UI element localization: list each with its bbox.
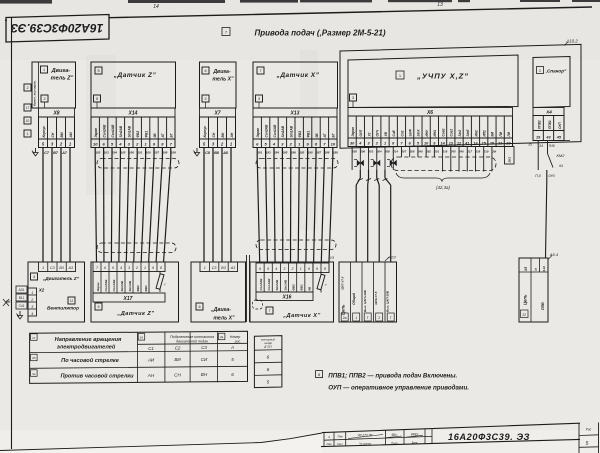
svg-text:Лист: Лист [337,442,343,446]
svg-text:9,10: 9,10 [542,266,546,272]
svg-text:16А20Ф3С39. ЭЗ: 16А20Ф3С39. ЭЗ [448,432,530,442]
svg-text:3209-У7.5: 3209-У7.5 [374,291,378,305]
svg-text:А3: А3 [230,266,235,270]
svg-text:3: 3 [352,96,354,100]
svg-text:Двига-: Двига- [212,69,231,75]
svg-text:Цепь: Цепь [523,294,528,305]
svg-text:188: 188 [325,151,330,155]
svg-text:ИН2: ИН2 [474,130,478,137]
svg-text:Изм: Изм [327,442,332,446]
svg-text:Вых. ЦАП+10В: Вых. ЦАП+10В [363,289,367,312]
svg-text:ЛИ: ЛИ [507,131,511,137]
svg-text:5: 5 [586,441,589,447]
svg-text:23: 23 [505,141,511,145]
svg-text:„Двига-: „Двига- [210,307,231,313]
svg-text:ОУП: ОУП [359,129,363,136]
svg-text:Подп.: Подп. [391,441,398,445]
svg-text:22: 22 [522,313,526,317]
svg-text:Х13: Х13 [290,111,300,117]
svg-text:1б: 1б [140,336,144,340]
svg-text:Экран: Экран [96,282,100,291]
svg-text:189: 189 [333,151,338,155]
svg-text:109: 109 [171,151,176,155]
svg-text:С1: С1 [148,346,154,351]
svg-text:35: 35 [528,143,532,147]
svg-text:0У0: 0У0 [548,174,554,178]
svg-text:1: 1 [42,266,44,270]
svg-text:4: 4 [120,266,122,270]
svg-text:41: 41 [464,141,469,145]
svg-text:5: 5 [112,266,114,270]
svg-text:2: 2 [43,97,45,101]
svg-text:Сол1АВ: Сол1АВ [267,278,271,291]
svg-text:Х7: Х7 [213,111,220,117]
svg-text:Номер: Номер [230,335,241,339]
svg-text:„Двигатель Z”: „Двигатель Z” [42,276,80,282]
svg-text:64: 64 [559,164,563,168]
svg-text:9: 9 [316,267,318,271]
svg-text:Sin1АВ: Sin1АВ [283,279,287,291]
svg-text:ВМ: ВМ [60,132,64,137]
svg-text:2: 2 [26,86,28,90]
svg-text:22: 22 [497,141,503,145]
svg-text:Х14: Х14 [128,111,138,117]
svg-text:17: 17 [32,336,36,340]
svg-text:45: 45 [556,135,562,139]
svg-text:Направление вращения: Направление вращения [55,337,122,343]
svg-text:3: 3 [258,97,260,101]
svg-text:У2: У2 [367,132,371,136]
svg-text:6: 6 [231,372,234,377]
svg-text:7И6: 7И6 [548,144,554,148]
svg-text:185: 185 [283,151,288,155]
svg-text:186: 186 [291,151,296,155]
svg-text:3н: 3н [32,372,36,376]
svg-text:Общий: Общий [352,292,356,305]
svg-text:1: 1 [300,267,302,271]
svg-text:А3: А3 [68,266,73,270]
svg-text:С2: С2 [175,346,181,351]
svg-text:УВ: УВ [384,131,388,136]
svg-text:1: 1 [355,316,357,320]
svg-text:Sin2: Sin2 [458,130,462,137]
svg-text:6: 6 [204,69,206,73]
svg-text:В3: В3 [59,266,63,270]
svg-text:АН: АН [230,132,234,138]
svg-text:Вентилятор: Вентилятор [47,306,79,312]
svg-text:Против часовой стрелки: Против часовой стрелки [60,373,134,380]
svg-text:ВН: ВН [221,132,225,137]
svg-text:Г: Г [390,316,392,320]
svg-text:„УЧПУ X,Z”: „УЧПУ X,Z” [416,72,469,81]
svg-text:4: 4 [33,275,35,279]
svg-text:ОУП: ОУП [558,122,562,129]
svg-text:ППВ2: ППВ2 [537,120,541,129]
svg-text:6: 6 [267,355,270,361]
svg-text:А7: А7 [61,151,68,155]
svg-text:С3: С3 [50,266,55,270]
svg-text:„Датчик Z”: „Датчик Z” [113,72,157,79]
svg-text:181: 181 [257,151,262,155]
svg-text:Х5: Х5 [524,267,528,272]
svg-text:С3: С3 [212,266,217,270]
svg-text:По часовой стрелке: По часовой стрелке [61,357,119,364]
svg-text:тель Z”: тель Z” [51,76,74,82]
svg-text:3: 3 [31,305,33,309]
svg-text:ППВ1: ППВ1 [548,120,552,129]
svg-text:7: 7 [268,309,270,313]
svg-text:Сол1АВ: Сол1АВ [112,279,116,292]
svg-text:Г: Г [367,316,369,320]
svg-text:2б: 2б [32,356,36,360]
svg-text:1: 1 [384,141,386,145]
svg-text:108: 108 [163,151,168,155]
svg-text:Сп2: Сп2 [400,130,404,136]
svg-text:Sin1АВ: Sin1АВ [128,280,132,292]
svg-text:7: 7 [259,69,261,73]
svg-text:Х2: Х2 [38,288,45,293]
svg-text:3: 3 [128,266,130,270]
svg-text:13: 13 [437,2,443,8]
svg-text:100: 100 [146,151,151,155]
svg-text:184: 184 [274,151,279,155]
svg-text:2в: 2в [220,335,224,339]
svg-text:СиЕ: СиЕ [392,129,396,136]
svg-text:ППВ1; ППВ2 — привода подач В: ППВ1; ППВ2 — привода подач Включены. [328,372,457,379]
svg-text:Х4: Х4 [545,110,552,115]
svg-text:9: 9 [308,267,310,271]
svg-text:Двига-: Двига- [51,68,71,74]
svg-text:Вых. ЦАП-10В: Вых. ЦАП-10В [386,290,390,312]
svg-text:0В: 0В [153,133,157,138]
svg-text:1: 1 [144,266,146,270]
svg-text:Сos2: Сos2 [450,129,454,137]
svg-text:14: 14 [153,4,159,10]
svg-text:ФВ2: ФВ2 [136,285,140,292]
svg-text:Sin2АВ: Sin2АВ [281,125,285,137]
svg-text:6: 6 [267,367,270,373]
svg-text:5: 5 [97,305,99,309]
svg-text:рис.: рис. [234,340,241,344]
svg-text:ИНУ: ИНУ [425,129,429,137]
svg-text:ПИ: ПИ [499,131,503,136]
svg-text:Sin2АВ: Sin2АВ [119,125,123,137]
svg-text:двигателей подач: двигателей подач [176,340,208,344]
svg-text:электродвигателей: электродвигателей [57,344,116,351]
svg-text:Экран: Экран [351,127,355,137]
svg-text:Привода подач (‚Размер 2М-5-21: Привода подач (‚Размер 2М-5-21) [255,29,386,38]
svg-text:А5.4: А5.4 [549,252,559,257]
svg-text:Экран: Экран [256,128,260,138]
svg-text:106: 106 [129,151,134,155]
svg-text:107: 107 [154,151,159,155]
svg-text:СоsЕ: СоsЕ [441,128,445,137]
svg-text:Колич. жил пров.: Колич. жил пров. [33,80,37,106]
svg-text:№ докум.: № докум. [359,441,372,445]
svg-text:2а: 2а [343,316,347,320]
svg-text:43: 43 [545,135,551,139]
svg-text:3207-У7.4: 3207-У7.4 [341,276,345,290]
svg-text:„Датчик Z”: „Датчик Z” [116,311,154,317]
svg-text:SinХ: SinХ [417,129,421,137]
svg-text:10: 10 [26,119,30,123]
svg-text:5: 5 [267,380,270,386]
svg-text:8: 8 [160,266,162,270]
svg-text:7Им: 7Им [337,435,343,439]
svg-text:АН: АН [147,373,155,378]
svg-text:ОУЧ: ОУЧ [376,129,380,136]
svg-text:ФВ1: ФВ1 [300,284,304,291]
svg-text:ИНХ: ИНХ [433,129,437,137]
svg-text:„Датчик X”: „Датчик X” [282,313,321,319]
svg-text:34: 34 [539,144,543,148]
svg-text:12: 12 [70,299,74,303]
svg-text:ИП2: ИП2 [483,130,487,137]
svg-text:А: А [230,345,234,350]
svg-text:Сол2АВ: Сол2АВ [104,279,108,292]
svg-text:2: 2 [30,298,33,302]
svg-text:5: 5 [267,267,269,271]
svg-text:А31: А31 [19,288,25,292]
svg-text:ОУП — оперативное управление: ОУП — оперативное управление приводами. [328,385,469,392]
svg-text:Sin2АВ: Sin2АВ [275,279,279,291]
svg-text:Сол1АВ: Сол1АВ [273,124,277,138]
svg-text:Х6: Х6 [426,110,433,116]
svg-text:ФВ1: ФВ1 [144,131,148,138]
svg-text:8: 8 [318,373,320,377]
svg-text:Сол2АВ: Сол2АВ [259,278,263,291]
svg-text:ВИ: ВИ [174,357,181,362]
svg-text:тель X”: тель X” [213,316,235,322]
svg-text:1: 1 [26,132,28,136]
svg-text:4: 4 [31,312,33,316]
svg-text:1: 1 [43,68,45,72]
svg-text:Х17: Х17 [123,296,133,302]
svg-text:5: 5 [231,357,234,362]
svg-text:ВН: ВН [201,372,208,377]
svg-text:8: 8 [324,267,326,271]
svg-text:4: 4 [275,267,277,271]
svg-text:СН: СН [51,132,55,137]
svg-text:17: 17 [26,106,30,110]
svg-text:SinЕ: SinЕ [466,129,470,137]
svg-text:3: 3 [283,267,285,271]
svg-text:2И1: 2И1 [508,157,512,164]
svg-text:ФВ2: ФВ2 [291,284,295,291]
svg-text:2: 2 [539,69,541,73]
svg-text:тель X”: тель X” [212,77,234,83]
svg-text:Х8: Х8 [52,111,59,117]
svg-text:(42,3а): (42,3а) [436,185,450,190]
svg-text:9: 9 [152,266,154,270]
svg-text:АИ: АИ [147,358,155,363]
svg-text:Sin1АВ: Sin1АВ [290,125,294,137]
svg-text:Рис: Рис [586,428,592,432]
svg-text:А8: А8 [222,151,229,155]
svg-text:С3: С3 [201,345,207,350]
svg-text:2: 2 [204,97,206,101]
svg-text:Х16: Х16 [282,295,292,301]
svg-text:SinФ: SinФ [408,129,412,137]
svg-text:105: 105 [121,151,126,155]
svg-text:Подключение контактов: Подключение контактов [170,335,214,339]
svg-text:1: 1 [204,266,206,270]
svg-text:КМ2: КМ2 [557,153,566,158]
svg-text:1а: 1а [534,267,538,271]
svg-text:10: 10 [331,141,336,146]
svg-text:ВИ: ВИ [491,131,495,136]
svg-text:Сол2АВ: Сол2АВ [264,124,268,138]
svg-text:СИ: СИ [201,357,208,362]
svg-text:2: 2 [135,266,138,270]
svg-text:П‚0: П‚0 [535,174,540,178]
svg-text:СН: СН [174,373,181,378]
svg-text:В11: В11 [19,296,25,300]
svg-text:16А20Ф3С39.ЭЗ: 16А20Ф3С39.ЭЗ [10,21,103,35]
svg-text:1: 1 [31,291,33,295]
svg-text:6: 6 [259,267,261,271]
svg-text:В3: В3 [221,266,225,270]
svg-text:С41: С41 [19,304,25,308]
svg-text:ФВ2: ФВ2 [136,131,140,138]
svg-text:Корпус: Корпус [203,126,207,138]
svg-text:Дата: Дата [412,440,418,444]
svg-text:2: 2 [378,316,380,320]
svg-text:ППВ: ППВ [541,302,545,310]
svg-text:Sin1АВ: Sin1АВ [128,125,132,137]
svg-text:Корпус: Корпус [42,126,46,138]
svg-text:101: 101 [137,151,142,155]
svg-text:Д-313: Д-313 [263,345,272,349]
svg-text:ФВ1: ФВ1 [144,285,148,292]
svg-text:6: 6 [198,305,200,309]
svg-text:‚Спанор”: ‚Спанор” [545,69,567,74]
svg-text:6: 6 [104,266,106,270]
svg-text:183: 183 [266,151,271,155]
svg-text:АМ: АМ [69,132,73,138]
svg-text:Sin2АВ: Sin2АВ [120,280,124,292]
svg-text:СН: СН [212,132,216,137]
svg-text:2: 2 [291,267,294,271]
